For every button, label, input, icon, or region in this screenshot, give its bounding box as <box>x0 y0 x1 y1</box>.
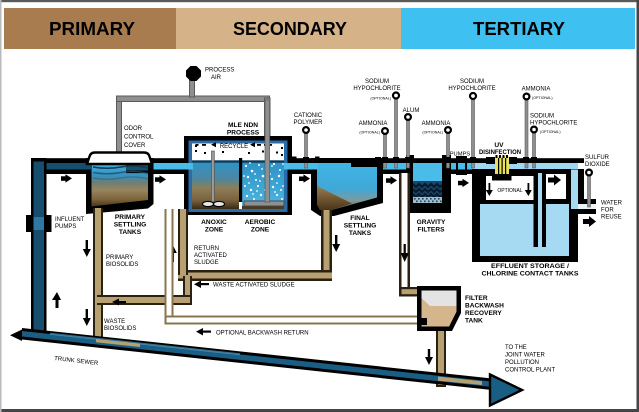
svg-text:POLYMER: POLYMER <box>294 120 324 126</box>
svg-text:COVER: COVER <box>124 143 146 149</box>
svg-text:INFLUENT: INFLUENT <box>55 217 85 223</box>
svg-text:BIOSOLIDS: BIOSOLIDS <box>104 326 136 332</box>
svg-text:(OPTIONAL): (OPTIONAL) <box>370 97 391 101</box>
svg-text:JOINT WATER: JOINT WATER <box>505 353 546 359</box>
svg-text:FILTERS: FILTERS <box>418 227 446 234</box>
svg-text:OPTIONAL BACKWASH RETURN: OPTIONAL BACKWASH RETURN <box>216 331 309 337</box>
svg-text:AMMONIA: AMMONIA <box>422 121 451 127</box>
svg-text:AEROBIC: AEROBIC <box>245 219 276 226</box>
svg-text:TERTIARY: TERTIARY <box>473 19 565 39</box>
svg-text:(OPTIONAL): (OPTIONAL) <box>540 130 561 134</box>
svg-text:MLE NDN: MLE NDN <box>228 122 258 129</box>
svg-text:AMMONIA: AMMONIA <box>522 87 551 93</box>
svg-text:SECONDARY: SECONDARY <box>233 19 347 39</box>
svg-text:POLLUTION: POLLUTION <box>505 360 539 366</box>
svg-text:SETTLING: SETTLING <box>114 222 147 229</box>
svg-text:ZONE: ZONE <box>251 227 270 234</box>
svg-text:FOR: FOR <box>601 208 614 214</box>
svg-text:SODIUM: SODIUM <box>365 79 389 85</box>
svg-text:PRIMARY: PRIMARY <box>49 19 135 39</box>
svg-text:GRAVITY: GRAVITY <box>417 219 446 226</box>
svg-text:PUMPS: PUMPS <box>55 224 76 230</box>
svg-text:PUMPS: PUMPS <box>450 152 471 158</box>
svg-text:AIR: AIR <box>211 75 222 81</box>
svg-text:ODOR: ODOR <box>124 126 143 132</box>
svg-text:TANK: TANK <box>465 318 483 325</box>
svg-text:PROCESS: PROCESS <box>227 130 260 137</box>
svg-text:UV: UV <box>494 142 504 149</box>
svg-text:(OPTIONAL): (OPTIONAL) <box>422 131 443 135</box>
svg-text:SODIUM: SODIUM <box>460 79 484 85</box>
svg-text:BACKWASH: BACKWASH <box>465 303 504 310</box>
svg-text:ACTIVATED: ACTIVATED <box>194 253 227 259</box>
svg-text:(OPTIONAL): (OPTIONAL) <box>359 131 380 135</box>
svg-text:TO THE: TO THE <box>505 345 527 351</box>
svg-text:FINAL: FINAL <box>350 215 369 222</box>
svg-text:CATIONIC: CATIONIC <box>294 113 323 119</box>
svg-text:RETURN: RETURN <box>194 246 219 252</box>
svg-text:CONTROL PLANT: CONTROL PLANT <box>505 368 555 374</box>
svg-text:CHLORINE CONTACT TANKS: CHLORINE CONTACT TANKS <box>482 271 580 278</box>
svg-text:RECOVERY: RECOVERY <box>465 310 502 317</box>
svg-text:ANOXIC: ANOXIC <box>201 219 227 226</box>
svg-text:WASTE ACTIVATED SLUDGE: WASTE ACTIVATED SLUDGE <box>213 283 295 289</box>
svg-text:OPTIONAL: OPTIONAL <box>497 188 523 194</box>
svg-text:SLUDGE: SLUDGE <box>194 260 219 266</box>
svg-text:FILTER: FILTER <box>465 295 488 302</box>
svg-text:CONTROL: CONTROL <box>124 135 154 141</box>
svg-text:WASTE: WASTE <box>104 319 125 325</box>
svg-text:(OPTIONAL): (OPTIONAL) <box>532 96 553 100</box>
svg-text:DISINFECTION: DISINFECTION <box>479 149 521 156</box>
svg-text:DIOXIDE: DIOXIDE <box>585 162 610 168</box>
svg-text:SODIUM: SODIUM <box>530 114 554 120</box>
svg-text:BIOSOLIDS: BIOSOLIDS <box>106 262 138 268</box>
svg-text:ZONE: ZONE <box>205 227 224 234</box>
svg-text:HYPOCHLORITE: HYPOCHLORITE <box>448 86 495 92</box>
svg-text:TANKS: TANKS <box>349 230 372 237</box>
svg-text:ALUM: ALUM <box>403 108 420 114</box>
svg-text:SULFUR: SULFUR <box>585 155 610 161</box>
svg-text:RECYCLE: RECYCLE <box>220 144 248 150</box>
svg-text:PRIMARY: PRIMARY <box>106 255 133 261</box>
svg-text:AMMONIA: AMMONIA <box>359 121 388 127</box>
svg-text:REUSE: REUSE <box>601 215 622 221</box>
svg-text:PROCESS: PROCESS <box>205 68 234 74</box>
svg-text:SETTLING: SETTLING <box>344 223 377 230</box>
svg-text:EFFLUENT STORAGE /: EFFLUENT STORAGE / <box>491 263 569 270</box>
svg-text:HYPOCHLORITE: HYPOCHLORITE <box>530 121 577 127</box>
svg-text:PRIMARY: PRIMARY <box>115 214 146 221</box>
svg-text:WATER: WATER <box>601 201 623 207</box>
svg-text:TANKS: TANKS <box>119 229 142 236</box>
svg-text:HYPOCHLORITE: HYPOCHLORITE <box>353 86 400 92</box>
